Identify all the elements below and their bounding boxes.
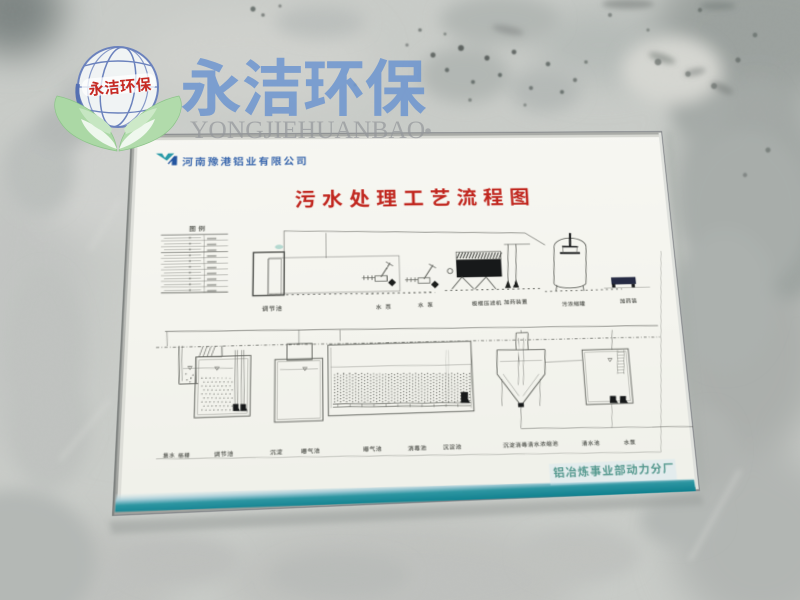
svg-text:YONGJIEHUANBAO: YONGJIEHUANBAO bbox=[190, 115, 425, 144]
